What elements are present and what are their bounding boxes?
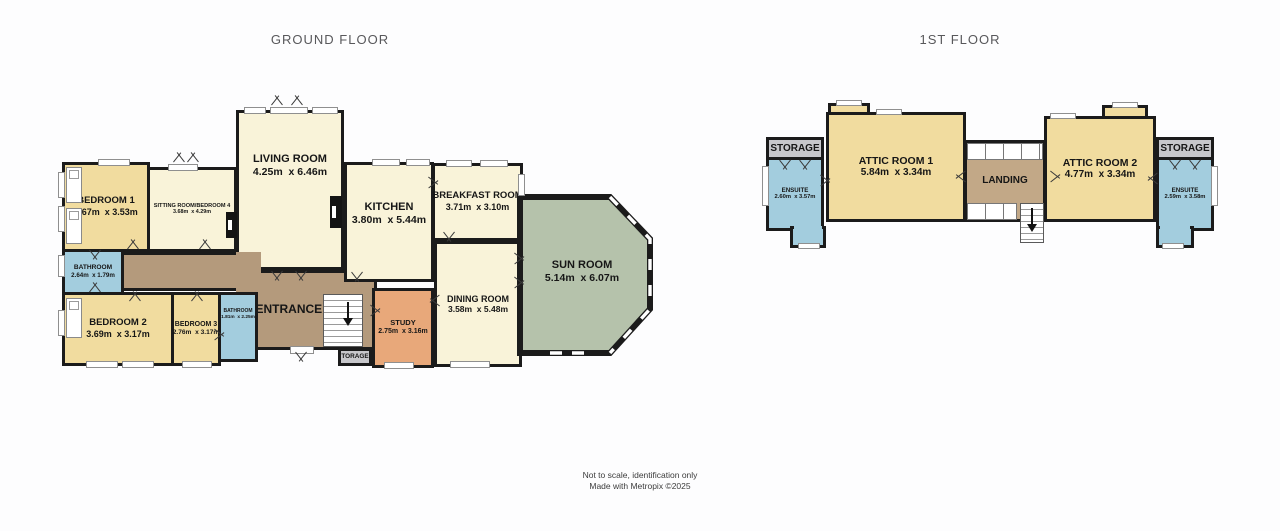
window [182, 361, 212, 368]
window-opening-icon [184, 153, 202, 162]
door-swing-icon [440, 232, 458, 241]
pillow-icon [69, 211, 79, 220]
wall-eraser [1160, 226, 1190, 232]
wardrobe-door [228, 220, 232, 230]
room-label: BEDROOM 3 [175, 321, 217, 329]
door-swing-icon [371, 302, 380, 320]
pillow-icon [69, 301, 79, 310]
room-label: BATHROOM [74, 264, 112, 272]
floorplan-canvas: GROUND FLOOR 1ST FLOOR ENTRANCE HALL BED… [0, 0, 1280, 531]
room-bathroom-2: BATHROOM 1.81m x 2.25m [218, 292, 258, 362]
room-label: LIVING ROOM [253, 153, 327, 166]
window-opening-icon [268, 96, 286, 105]
window [1050, 113, 1076, 119]
door-swing-icon [957, 168, 966, 186]
first-floor-title: 1ST FLOOR [880, 32, 1040, 47]
room-dims: 3.58m x 5.48m [448, 304, 508, 314]
room-label: STORAGE [770, 143, 819, 155]
footer-note: Not to scale, identification only Made w… [490, 470, 790, 492]
room-label: LANDING [982, 175, 1028, 187]
front-door-swing-icon [292, 352, 310, 361]
door-swing-icon [776, 160, 794, 169]
room-study: STUDY 2.75m x 3.16m [372, 288, 434, 368]
room-dims: 5.14m x 6.07m [545, 272, 619, 285]
door-swing-icon [86, 250, 104, 259]
room-label: KITCHEN [365, 201, 414, 214]
bed-icon [66, 167, 82, 203]
room-dims: 2.75m x 3.16m [378, 328, 427, 336]
room-dims: 4.25m x 6.46m [253, 166, 327, 179]
window [312, 107, 338, 114]
window [168, 164, 198, 171]
room-dims: 3.68m x 4.29m [173, 209, 211, 215]
window [122, 361, 154, 368]
window [372, 159, 400, 166]
door-swing-icon [796, 160, 814, 169]
door-swing-icon [348, 272, 366, 281]
room-dims: 3.80m x 5.44m [352, 214, 426, 227]
door-swing-icon [1166, 160, 1184, 169]
footer-line-2: Made with Metropix ©2025 [490, 481, 790, 492]
room-dims: 3.71m x 3.10m [446, 202, 510, 213]
door-swing-icon [292, 271, 310, 280]
room-sunroom: SUN ROOM 5.14m x 6.07m [516, 193, 656, 359]
window [1112, 102, 1138, 108]
room-dims: 2.60m x 3.57m [775, 194, 816, 201]
window [836, 100, 862, 106]
door-swing-icon [429, 174, 438, 192]
room-label: DINING ROOM [447, 294, 509, 304]
door-swing-icon [86, 283, 104, 292]
wardrobe-icon [226, 212, 237, 238]
wardrobe-door [332, 206, 336, 219]
french-door [270, 107, 308, 114]
window [1211, 166, 1218, 206]
window [876, 109, 902, 115]
door-swing-icon [126, 292, 144, 301]
stairs-down-arrow-icon [347, 302, 349, 324]
window [518, 174, 525, 196]
window [480, 160, 508, 167]
pillow-icon [69, 170, 79, 179]
window [244, 107, 266, 114]
window [58, 310, 65, 336]
door-swing-icon [515, 250, 524, 268]
room-dining: DINING ROOM 3.58m x 5.48m [434, 241, 522, 367]
room-label: STORAGE [1160, 143, 1209, 155]
room-label: STUDY [390, 319, 415, 328]
door-swing-icon [1186, 160, 1204, 169]
bed-icon [66, 208, 82, 244]
door-swing-icon [1051, 168, 1060, 186]
window [98, 159, 130, 166]
closet-icon [967, 203, 1017, 220]
ground-floor-title: GROUND FLOOR [230, 32, 430, 47]
door-swing-icon [1149, 170, 1158, 188]
room-dims: 4.77m x 3.34m [1065, 169, 1136, 181]
room-label: ENSUITE [782, 187, 809, 194]
room-label: ATTIC ROOM 2 [1063, 157, 1137, 169]
window [384, 362, 414, 369]
window [58, 206, 65, 232]
room-label: BREAKFAST ROOM [432, 191, 522, 202]
wardrobe-icon [330, 196, 342, 228]
room-dims: 2.59m x 3.58m [1165, 194, 1206, 201]
door-swing-icon [188, 292, 206, 301]
door-swing-icon [196, 240, 214, 249]
room-attic-1: ATTIC ROOM 1 5.84m x 3.34m [826, 112, 966, 222]
stairs-down-arrow-icon [1031, 208, 1033, 230]
room-ensuite-left: ENSUITE 2.60m x 3.57m [766, 157, 824, 231]
window [86, 361, 118, 368]
room-sitting-bedroom4: SITTING ROOM/BEDROOM 4 3.68m x 4.29m [147, 167, 237, 252]
room-ensuite-right: ENSUITE 2.59m x 3.58m [1156, 157, 1214, 231]
room-kitchen: KITCHEN 3.80m x 5.44m [344, 162, 434, 282]
room-breakfast: BREAKFAST ROOM 3.71m x 3.10m [432, 163, 523, 241]
door-swing-icon [268, 271, 286, 280]
window [58, 255, 65, 277]
window [450, 361, 490, 368]
room-label: BEDROOM 1 [77, 196, 135, 207]
room-dims: 3.67m x 3.53m [74, 207, 138, 218]
door-swing-icon [124, 240, 142, 249]
window [798, 243, 820, 249]
bed-icon [66, 298, 82, 338]
window [762, 166, 769, 206]
door-swing-icon [215, 326, 224, 344]
window [406, 159, 430, 166]
room-label: ATTIC ROOM 1 [859, 155, 933, 167]
room-dims: 3.69m x 3.17m [86, 329, 150, 340]
room-dims: 1.81m x 2.25m [221, 315, 255, 321]
door-swing-icon [821, 172, 830, 190]
room-dims: 2.64m x 1.79m [71, 272, 115, 279]
room-label: BEDROOM 2 [89, 318, 147, 329]
window [446, 160, 472, 167]
window [1162, 243, 1184, 249]
room-label: ENSUITE [1172, 187, 1199, 194]
wall-eraser [794, 226, 822, 232]
room-attic-2: ATTIC ROOM 2 4.77m x 3.34m [1044, 116, 1156, 222]
room-label: SUN ROOM [552, 259, 613, 272]
room-dims: 2.76m x 3.17m [173, 329, 220, 337]
closet-icon [967, 143, 1043, 160]
door-swing-icon [431, 292, 440, 310]
room-label: TORAGE [341, 353, 368, 360]
room-dims: 5.84m x 3.34m [861, 167, 932, 179]
room-storage-ground: TORAGE [338, 348, 372, 366]
corridor-junction [236, 252, 261, 292]
window [58, 172, 65, 198]
door-swing-icon [515, 274, 524, 292]
footer-line-1: Not to scale, identification only [490, 470, 790, 481]
room-living: LIVING ROOM 4.25m x 6.46m [236, 110, 344, 270]
window-opening-icon [288, 96, 306, 105]
